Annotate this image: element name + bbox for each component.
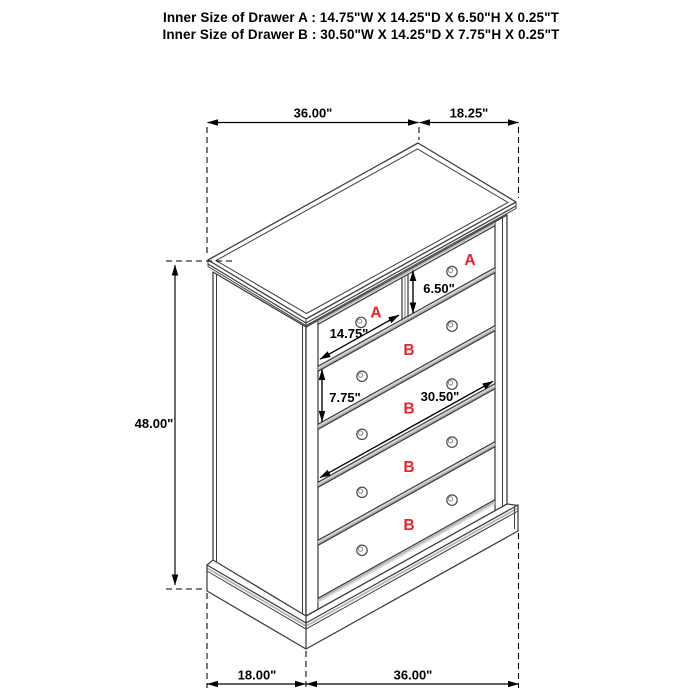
dim-drawer-b-height-label: 7.75"	[329, 390, 360, 405]
drawer-a-right-label: A	[464, 252, 475, 269]
dim-top-width-label: 36.00"	[294, 106, 333, 121]
dim-drawer-a-width-label: 14.75"	[330, 326, 369, 341]
drawer-b2-label: B	[403, 401, 414, 418]
furniture-dimension-diagram: Inner Size of Drawer A : 14.75"W X 14.25…	[0, 0, 700, 700]
knob-icon	[357, 371, 367, 381]
knob-icon	[357, 429, 367, 439]
dim-base-width-label: 36.00"	[394, 668, 433, 683]
knob-icon	[447, 495, 457, 505]
dim-drawer-a-height-label: 6.50"	[423, 281, 454, 296]
dim-height-label: 48.00"	[135, 416, 174, 431]
knob-icon	[447, 321, 457, 331]
knob-icon	[357, 487, 367, 497]
knob-icon	[357, 545, 367, 555]
knob-icon	[447, 266, 457, 276]
dim-base-depth-label: 18.00"	[238, 668, 277, 683]
drawer-b4-label: B	[403, 517, 414, 534]
drawer-b1-label: B	[403, 342, 414, 359]
dim-top-width: 36.00"	[208, 106, 419, 123]
knob-icon	[447, 379, 457, 389]
dim-base-depth: 18.00"	[208, 668, 306, 685]
knob-icon	[447, 437, 457, 447]
dim-base-width: 36.00"	[307, 668, 519, 685]
side-panel	[213, 272, 306, 616]
drawer-a-left-label: A	[370, 305, 381, 322]
dresser-line-drawing: 36.00" 18.25" 48.00" 18.00" 36.00" 14.75…	[0, 0, 700, 700]
dim-drawer-b-width-label: 30.50"	[421, 389, 460, 404]
dim-top-depth-label: 18.25"	[450, 106, 489, 121]
dim-top-depth: 18.25"	[420, 106, 519, 123]
drawer-b3-label: B	[403, 459, 414, 476]
dim-height: 48.00"	[135, 265, 175, 585]
